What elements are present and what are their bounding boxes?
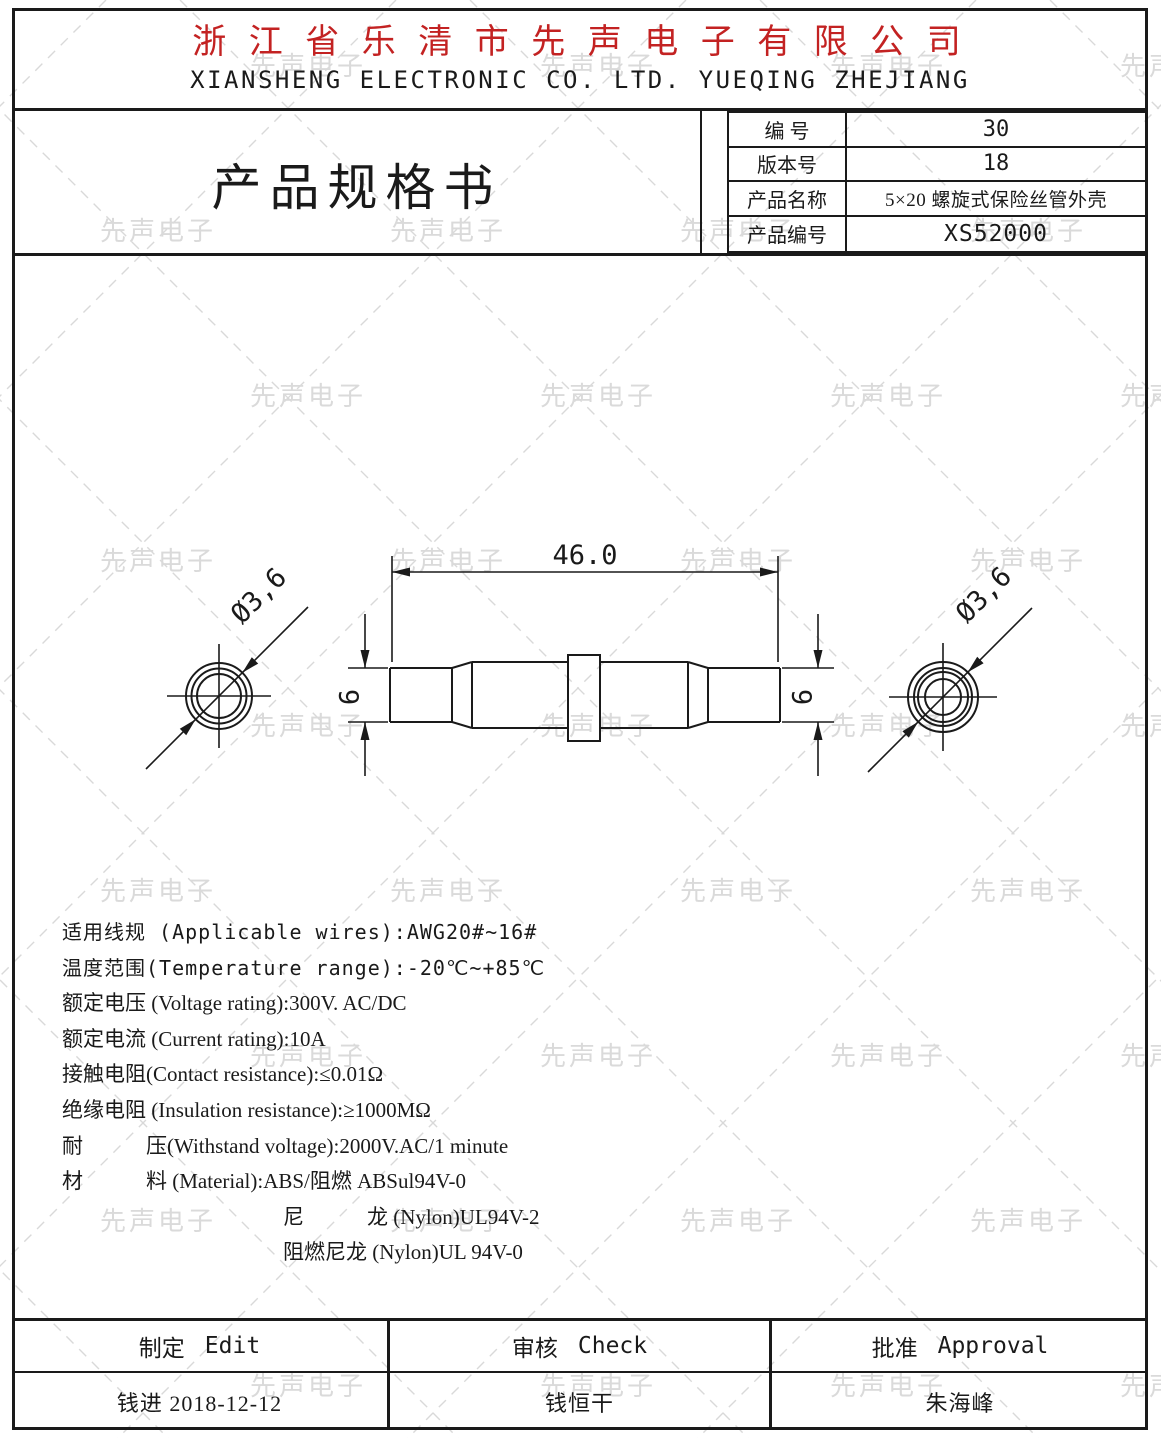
info-label-version: 版本号 [729, 148, 847, 183]
spec-line-nylon: 尼 龙 (Nylon)UL94V-2 [62, 1200, 742, 1236]
spec-line-applicable-wires: 适用线规 (Applicable wires):AWG20#~16# [62, 915, 742, 951]
spec-line-insulation-resistance: 绝缘电阻 (Insulation resistance):≥1000MΩ [62, 1093, 742, 1129]
watermark-text: 先声电子 [540, 706, 656, 743]
approval-value-check: 钱恒干 [390, 1373, 772, 1430]
watermark-text: 先声电子 [100, 871, 216, 908]
approval-header-check-en: Check [578, 1333, 647, 1359]
approval-header-approval: 批准 Approval [772, 1321, 1148, 1373]
spec-line-material: 材 料 (Material):ABS/阻燃 ABSul94V-0 [62, 1164, 742, 1200]
info-value-version: 18 [847, 148, 1145, 183]
approval-header-check-cn: 审核 [512, 1329, 558, 1363]
approval-header-edit: 制定 Edit [12, 1321, 390, 1373]
approval-header-approval-en: Approval [938, 1333, 1049, 1359]
info-value-product-code: XS52000 [847, 217, 1145, 252]
doc-title: 产品规格书 [15, 118, 698, 250]
watermark-text: 先声电子 [970, 1201, 1086, 1238]
watermark-text: 先声电子 [830, 376, 946, 413]
info-value-product-name: 5×20 螺旋式保险丝管外壳 [847, 182, 1145, 217]
watermark-text: 先声电子 [100, 541, 216, 578]
watermark-text: 先声电子 [680, 871, 796, 908]
info-label-product-name: 产品名称 [729, 182, 847, 217]
watermark-text: 先声电子 [1120, 706, 1161, 743]
spec-line-temperature-range: 温度范围(Temperature range):-20℃~+85℃ [62, 951, 742, 987]
info-value-number: 30 [847, 113, 1145, 148]
specs-section: 适用线规 (Applicable wires):AWG20#~16# 温度范围(… [62, 915, 742, 1271]
watermark-text: 先声电子 [390, 541, 506, 578]
spec-line-flame-retardant-nylon: 阻燃尼龙 (Nylon)UL 94V-0 [62, 1235, 742, 1271]
approval-header-approval-cn: 批准 [872, 1329, 918, 1363]
title-band-divider [12, 253, 1148, 256]
watermark-text: 先声电子 [1120, 376, 1161, 413]
info-table: 编 号 30 版本号 18 产品名称 5×20 螺旋式保险丝管外壳 产品编号 X… [727, 111, 1147, 253]
info-label-product-code: 产品编号 [729, 217, 847, 252]
approval-header-edit-en: Edit [205, 1333, 260, 1359]
company-name-cn: 浙 江 省 乐 清 市 先 声 电 子 有 限 公 司 [15, 14, 1145, 63]
approval-table: 制定 Edit 审核 Check 批准 Approval 钱进 2018-12-… [12, 1321, 1148, 1430]
watermark-text: 先声电子 [250, 706, 366, 743]
spec-line-current-rating: 额定电流 (Current rating):10A [62, 1022, 742, 1058]
approval-header-edit-cn: 制定 [139, 1329, 185, 1363]
watermark-text: 先声电子 [830, 1036, 946, 1073]
watermark-text: 先声电子 [250, 376, 366, 413]
watermark-text: 先声电子 [970, 541, 1086, 578]
approval-value-approval: 朱海峰 [772, 1373, 1148, 1430]
spec-line-withstand-voltage: 耐 压(Withstand voltage):2000V.AC/1 minute [62, 1129, 742, 1165]
spec-line-voltage-rating: 额定电压 (Voltage rating):300V. AC/DC [62, 986, 742, 1022]
company-name-en: XIANSHENG ELECTRONIC CO. LTD. YUEQING ZH… [15, 66, 1145, 94]
approval-header-check: 审核 Check [390, 1321, 772, 1373]
info-label-number: 编 号 [729, 113, 847, 148]
watermark-text: 先声电子 [970, 871, 1086, 908]
title-box-right-border [700, 111, 702, 253]
spec-line-contact-resistance: 接触电阻(Contact resistance):≤0.01Ω [62, 1057, 742, 1093]
approval-value-edit: 钱进 2018-12-12 [12, 1373, 390, 1430]
watermark-text: 先声电子 [540, 376, 656, 413]
product-spec-sheet: { "watermark": { "text": "先声电子" }, "head… [0, 0, 1161, 1438]
watermark-text: 先声电子 [1120, 1036, 1161, 1073]
watermark-text: 先声电子 [390, 871, 506, 908]
watermark-text: 先声电子 [830, 706, 946, 743]
watermark-text: 先声电子 [680, 541, 796, 578]
